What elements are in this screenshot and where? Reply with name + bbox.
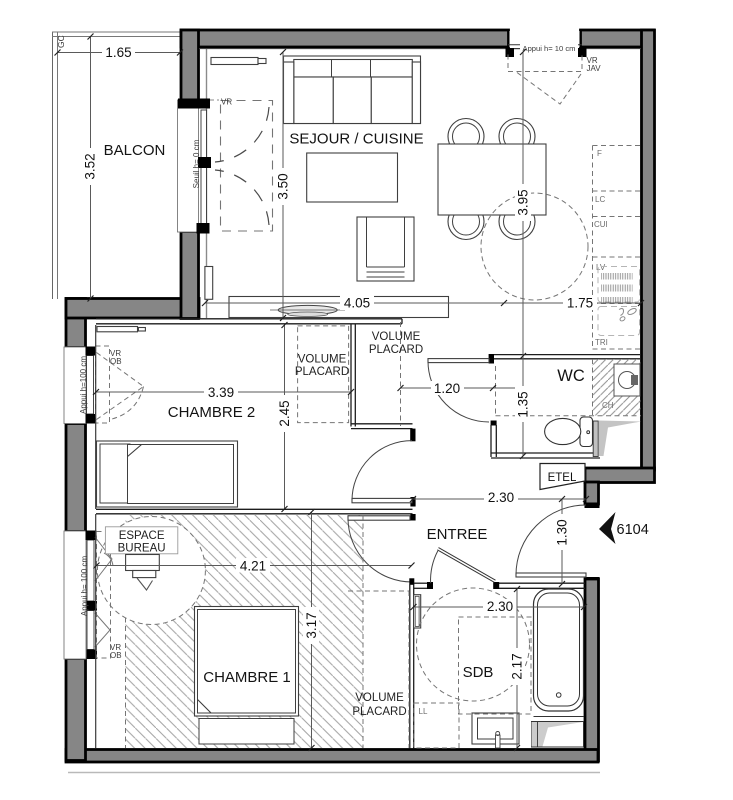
svg-text:VOLUME: VOLUME: [372, 331, 421, 343]
svg-text:TRI: TRI: [595, 338, 608, 347]
svg-text:JAV: JAV: [587, 64, 602, 73]
svg-text:BUREAU: BUREAU: [118, 543, 166, 555]
svg-text:VR: VR: [221, 98, 232, 107]
svg-text:2.45: 2.45: [277, 400, 292, 426]
svg-text:3.95: 3.95: [516, 189, 531, 215]
svg-text:WC: WC: [557, 367, 585, 385]
svg-text:Appui h= 100 cm: Appui h= 100 cm: [80, 556, 89, 617]
svg-text:CHAMBRE 2: CHAMBRE 2: [168, 404, 256, 421]
svg-text:3.52: 3.52: [83, 153, 98, 179]
svg-text:LL: LL: [419, 707, 428, 716]
svg-text:4.05: 4.05: [344, 296, 370, 311]
svg-text:3.39: 3.39: [208, 385, 234, 400]
svg-text:3.17: 3.17: [304, 612, 319, 638]
svg-text:LC: LC: [595, 195, 605, 204]
svg-text:Appui h= 10 cm: Appui h= 10 cm: [523, 44, 576, 53]
svg-text:PLACARD: PLACARD: [295, 366, 349, 378]
svg-text:1.65: 1.65: [105, 45, 131, 60]
svg-text:2.30: 2.30: [487, 599, 513, 614]
svg-text:3.50: 3.50: [276, 173, 291, 199]
svg-text:1.35: 1.35: [516, 391, 531, 417]
svg-text:Seuil h= 0 cm: Seuil h= 0 cm: [192, 139, 201, 188]
svg-text:BALCON: BALCON: [104, 142, 166, 159]
svg-text:SEJOUR / CUISINE: SEJOUR / CUISINE: [289, 131, 423, 148]
svg-text:1.30: 1.30: [555, 519, 570, 545]
svg-text:1.20: 1.20: [434, 381, 460, 396]
svg-text:2.17: 2.17: [510, 653, 525, 679]
svg-text:GC: GC: [56, 35, 66, 48]
svg-text:VOLUME: VOLUME: [298, 354, 347, 366]
svg-text:PLACARD: PLACARD: [369, 344, 423, 356]
svg-text:4.21: 4.21: [240, 559, 266, 574]
svg-text:ESPACE: ESPACE: [119, 530, 165, 542]
svg-text:2.30: 2.30: [488, 490, 514, 505]
svg-text:VOLUME: VOLUME: [355, 692, 404, 704]
svg-text:CUI: CUI: [594, 220, 608, 229]
svg-text:CH: CH: [602, 401, 614, 410]
svg-text:CHAMBRE 1: CHAMBRE 1: [203, 669, 291, 686]
svg-text:Appui h=100 cm: Appui h=100 cm: [79, 356, 88, 414]
svg-text:SDB: SDB: [463, 664, 494, 681]
svg-text:F: F: [597, 149, 602, 158]
svg-text:ETEL: ETEL: [548, 472, 577, 484]
svg-text:1.75: 1.75: [567, 296, 593, 311]
svg-text:OB: OB: [110, 651, 122, 660]
svg-text:PLACARD: PLACARD: [352, 706, 406, 718]
svg-text:ENTREE: ENTREE: [427, 526, 488, 543]
svg-text:OB: OB: [110, 357, 122, 366]
svg-text:6104: 6104: [617, 522, 649, 538]
svg-text:LV: LV: [596, 263, 606, 272]
